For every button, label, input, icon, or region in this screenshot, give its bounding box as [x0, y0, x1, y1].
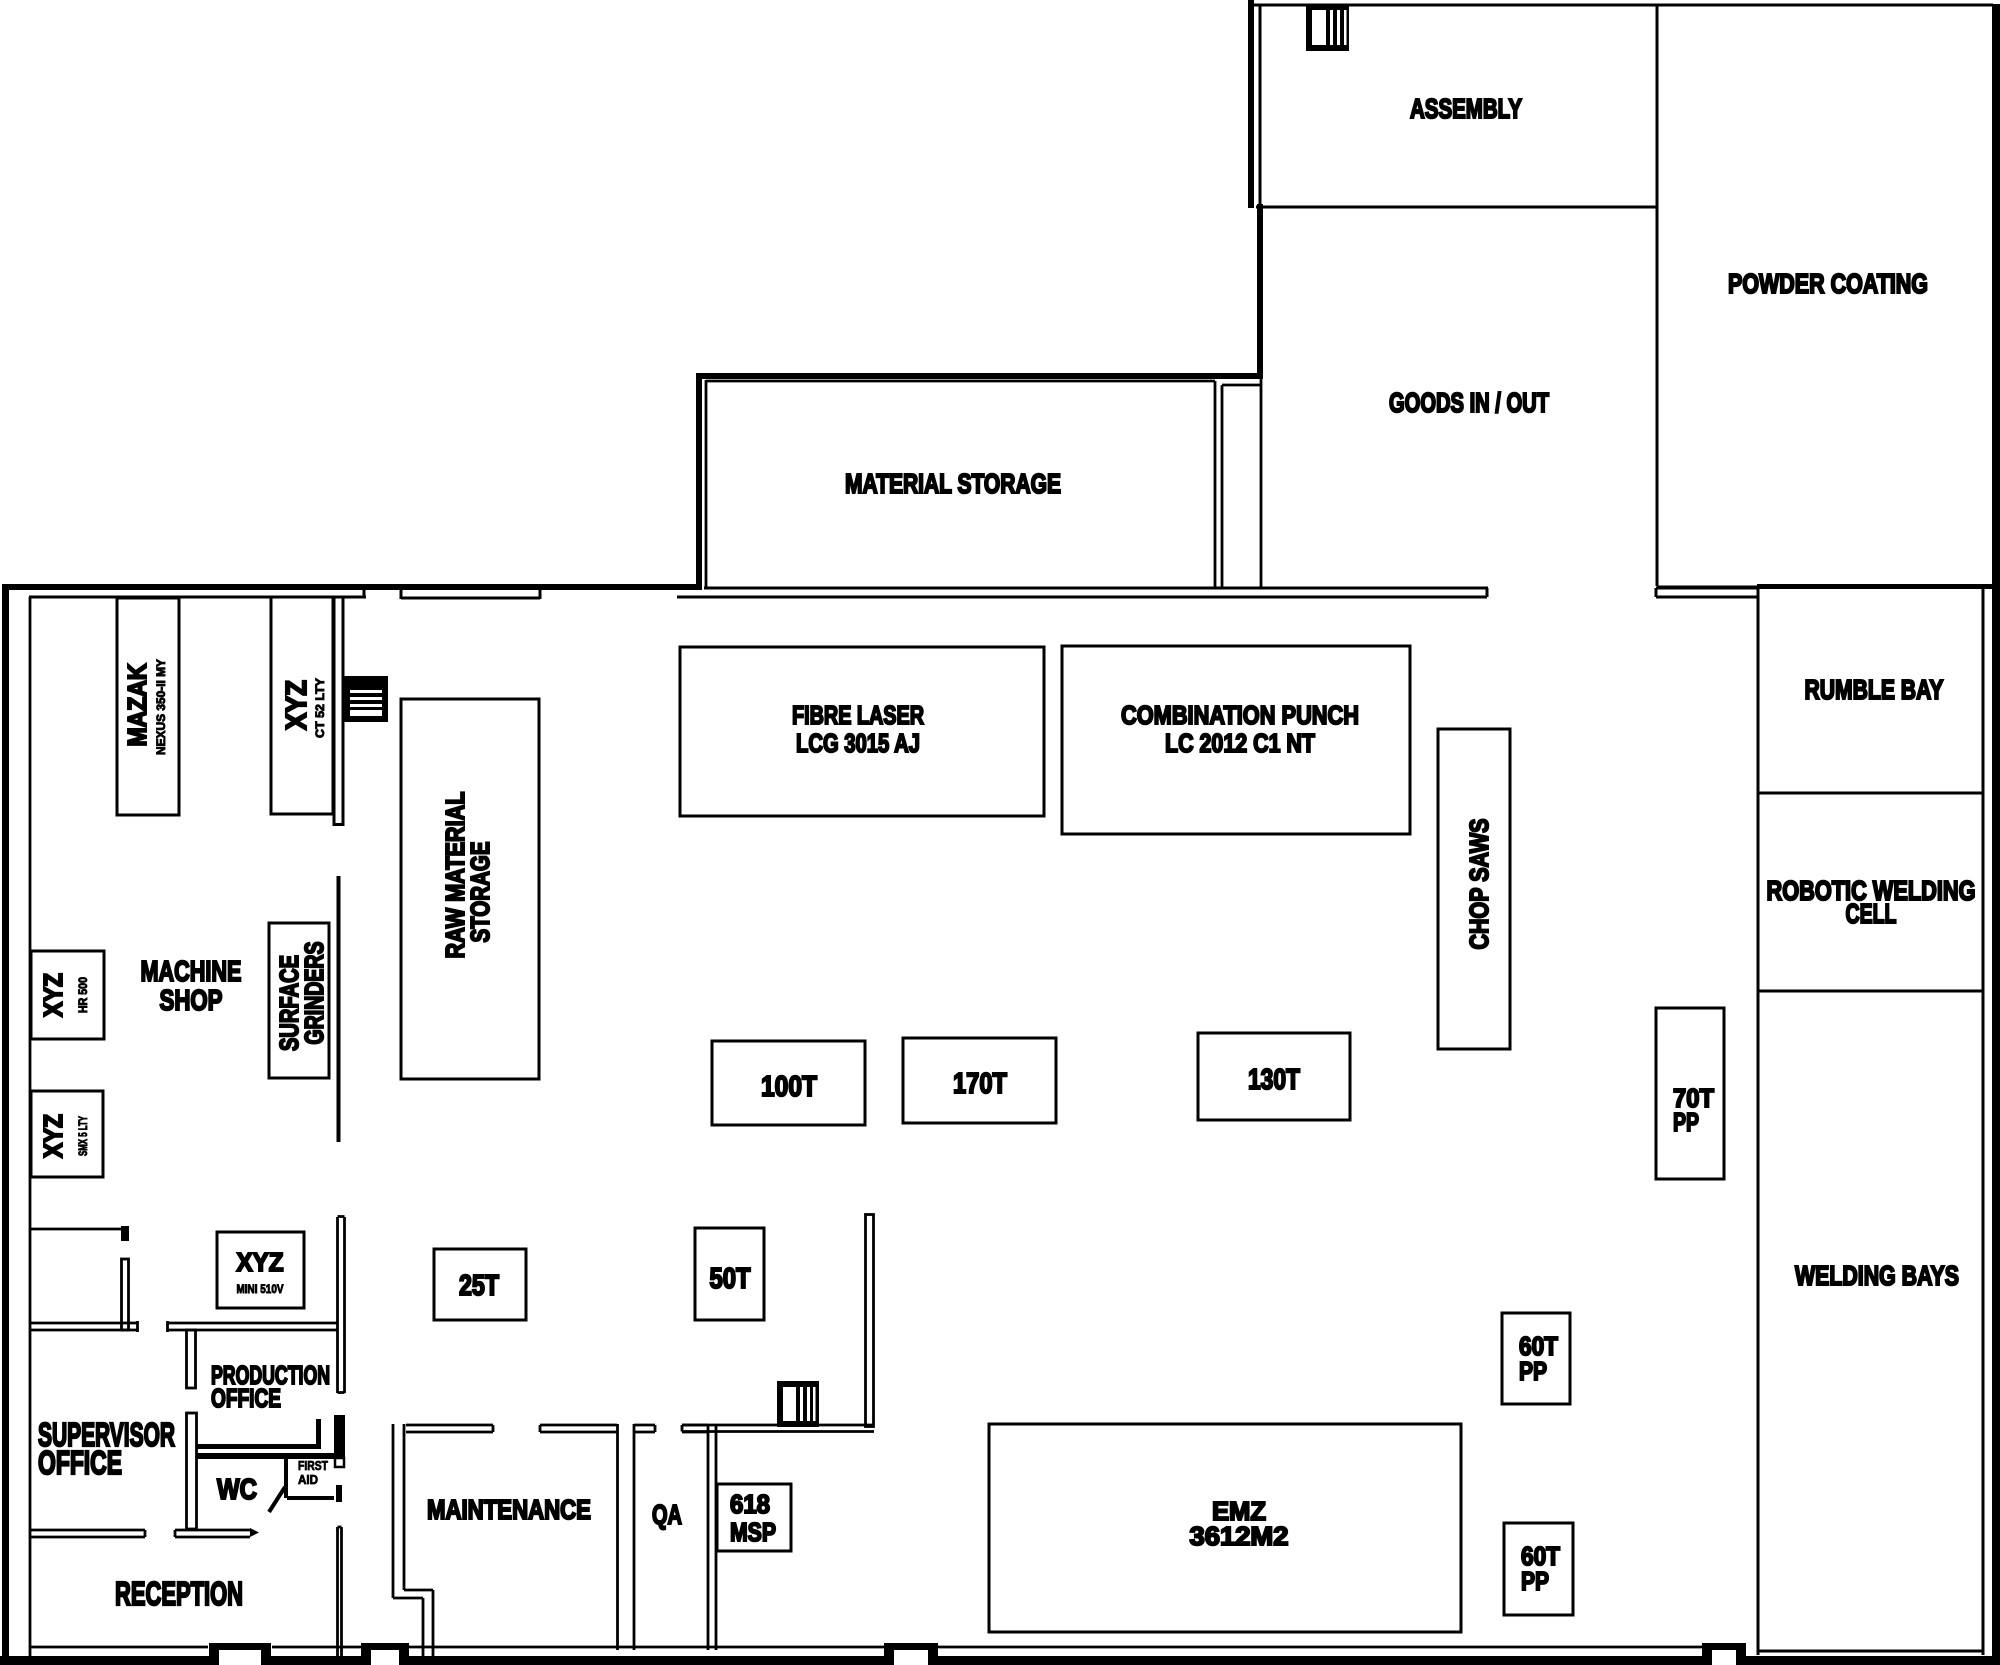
svg-text:COMBINATION PUNCH: COMBINATION PUNCH	[1121, 700, 1359, 730]
svg-text:CELL: CELL	[1846, 898, 1897, 929]
svg-text:170T: 170T	[953, 1068, 1007, 1100]
svg-text:AID: AID	[298, 1472, 318, 1487]
svg-text:130T: 130T	[1248, 1064, 1300, 1096]
svg-text:SHOP: SHOP	[160, 985, 223, 1017]
svg-text:QA: QA	[652, 1499, 682, 1530]
svg-text:100T: 100T	[761, 1071, 817, 1103]
svg-text:MAZAK: MAZAK	[122, 663, 152, 746]
svg-text:CHOP SAWS: CHOP SAWS	[1464, 819, 1494, 950]
svg-text:FIBRE LASER: FIBRE LASER	[792, 700, 924, 730]
svg-text:WELDING BAYS: WELDING BAYS	[1795, 1260, 1959, 1291]
svg-text:MACHINE: MACHINE	[141, 956, 242, 988]
svg-text:MSP: MSP	[730, 1517, 776, 1547]
svg-text:RECEPTION: RECEPTION	[115, 1575, 243, 1612]
svg-text:HR 500: HR 500	[78, 977, 90, 1013]
svg-text:XYZ: XYZ	[38, 1114, 68, 1158]
svg-text:PP: PP	[1519, 1356, 1547, 1386]
svg-text:3612M2: 3612M2	[1190, 1521, 1289, 1551]
svg-text:25T: 25T	[459, 1270, 499, 1302]
svg-text:WC: WC	[217, 1474, 257, 1506]
svg-text:PP: PP	[1521, 1566, 1549, 1596]
svg-text:MAINTENANCE: MAINTENANCE	[427, 1494, 591, 1525]
svg-text:GRINDERS: GRINDERS	[299, 942, 329, 1045]
svg-text:618: 618	[730, 1489, 770, 1519]
svg-text:50T: 50T	[710, 1263, 751, 1295]
svg-text:NEXUS 350-II MY: NEXUS 350-II MY	[156, 659, 168, 755]
svg-text:SMX 5 LTY: SMX 5 LTY	[78, 1116, 90, 1156]
svg-text:MATERIAL STORAGE: MATERIAL STORAGE	[845, 468, 1061, 499]
svg-text:FIRST: FIRST	[298, 1458, 328, 1473]
svg-text:OFFICE: OFFICE	[38, 1444, 122, 1481]
svg-text:GOODS IN / OUT: GOODS IN / OUT	[1389, 387, 1549, 418]
svg-text:XYZ: XYZ	[38, 973, 68, 1017]
svg-text:OFFICE: OFFICE	[211, 1383, 281, 1413]
svg-text:STORAGE: STORAGE	[465, 842, 495, 943]
svg-text:MINI 510V: MINI 510V	[237, 1284, 284, 1296]
svg-text:RUMBLE BAY: RUMBLE BAY	[1805, 674, 1944, 705]
svg-text:POWDER COATING: POWDER COATING	[1728, 268, 1928, 299]
svg-text:ASSEMBLY: ASSEMBLY	[1410, 93, 1522, 124]
svg-text:XYZ: XYZ	[281, 680, 313, 730]
svg-text:LC 2012 C1 NT: LC 2012 C1 NT	[1165, 728, 1315, 758]
svg-text:CT 52 LTY: CT 52 LTY	[315, 678, 327, 738]
svg-text:LCG 3015 AJ: LCG 3015 AJ	[796, 728, 920, 758]
svg-text:PP: PP	[1673, 1107, 1699, 1137]
svg-text:XYZ: XYZ	[237, 1247, 284, 1277]
